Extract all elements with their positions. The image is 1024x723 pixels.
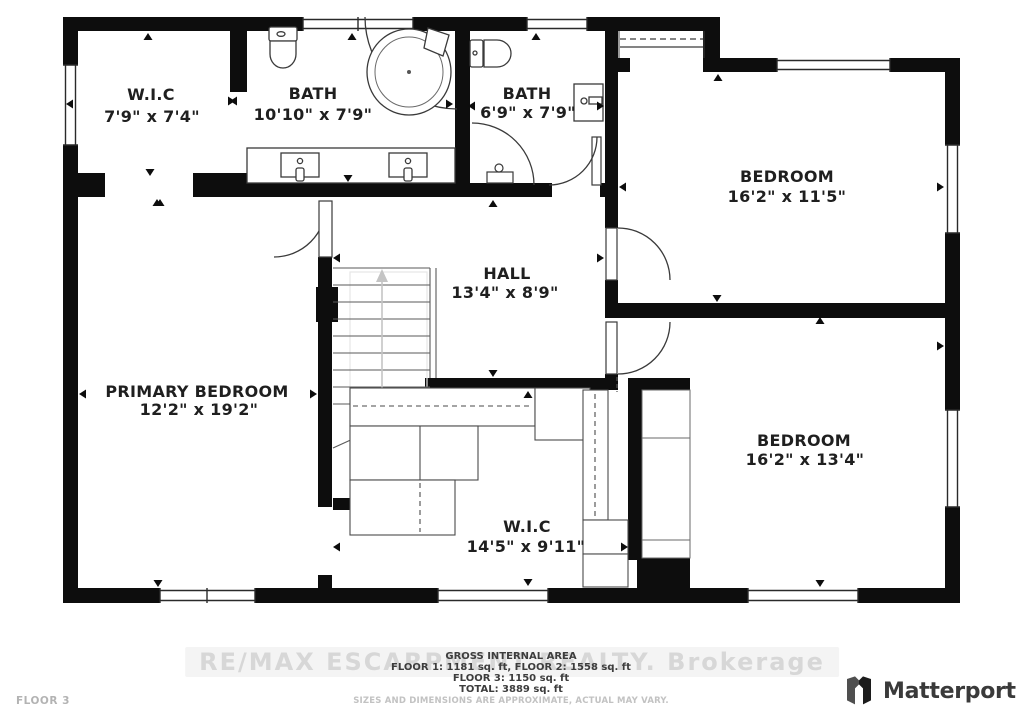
svg-text:12'2" x 19'2": 12'2" x 19'2" (140, 400, 259, 419)
room-label-bath-main: BATH 10'10" x 7'9" (254, 84, 373, 124)
gross-internal-area-block: GROSS INTERNAL AREA FLOOR 1: 1181 sq. ft… (311, 651, 711, 707)
svg-text:BATH: BATH (289, 84, 338, 103)
area-line-1: FLOOR 1: 1181 sq. ft, FLOOR 2: 1558 sq. … (311, 662, 711, 673)
room-label-bedroom-bottom: BEDROOM 16'2" x 13'4" (746, 431, 865, 469)
floor-number-label: FLOOR 3 (16, 695, 70, 707)
area-line-3: TOTAL: 3889 sq. ft (311, 684, 711, 695)
svg-text:13'4" x 8'9": 13'4" x 8'9" (451, 283, 558, 302)
area-title: GROSS INTERNAL AREA (311, 651, 711, 662)
faucet-icon (487, 164, 513, 183)
closet-top-bedroom (619, 31, 704, 58)
bedroom-closet-shelves (642, 390, 690, 558)
room-label-bedroom-top: BEDROOM 16'2" x 11'5" (728, 167, 847, 206)
floorplan-page: RE/MAX ESCARPMENT REALTY. Brokerage (0, 0, 1024, 723)
matterport-wordmark: Matterport (883, 679, 1016, 704)
svg-text:PRIMARY BEDROOM: PRIMARY BEDROOM (105, 382, 288, 401)
svg-text:BEDROOM: BEDROOM (740, 167, 834, 186)
svg-text:HALL: HALL (483, 264, 530, 283)
room-label-hall: HALL 13'4" x 8'9" (451, 264, 558, 302)
room-label-bath-small: BATH 6'9" x 7'9" (480, 84, 576, 122)
floorplan-drawing: W.I.C 7'9" x 7'4" BATH 10'10" x 7'9" BAT… (0, 0, 1024, 723)
room-label-wic-bottom: W.I.C 14'5" x 9'11" (467, 517, 586, 556)
bathtub-icon (365, 17, 457, 115)
svg-text:6'9" x 7'9": 6'9" x 7'9" (480, 103, 576, 122)
matterport-mark-icon (843, 675, 875, 707)
area-line-2: FLOOR 3: 1150 sq. ft (311, 673, 711, 684)
size-disclaimer: SIZES AND DIMENSIONS ARE APPROXIMATE, AC… (311, 696, 711, 707)
toilet-small-icon (470, 40, 511, 67)
room-labels: W.I.C 7'9" x 7'4" BATH 10'10" x 7'9" BAT… (104, 84, 864, 556)
svg-text:14'5" x 9'11": 14'5" x 9'11" (467, 537, 586, 556)
svg-text:10'10" x 7'9": 10'10" x 7'9" (254, 105, 373, 124)
wic-wardrobes (350, 388, 628, 587)
svg-text:W.I.C: W.I.C (503, 517, 551, 536)
bedroom-bottom-door (606, 322, 670, 374)
svg-text:7'9" x 7'4": 7'9" x 7'4" (104, 107, 200, 126)
room-label-primary-bedroom: PRIMARY BEDROOM 12'2" x 19'2" (105, 382, 288, 419)
svg-text:16'2" x 13'4": 16'2" x 13'4" (746, 450, 865, 469)
toilet-icon (269, 27, 297, 68)
svg-text:BATH: BATH (503, 84, 552, 103)
bedroom-top-door (606, 228, 670, 280)
svg-text:W.I.C: W.I.C (127, 85, 175, 104)
sink-icon (574, 84, 603, 121)
svg-text:16'2" x 11'5": 16'2" x 11'5" (728, 187, 847, 206)
svg-text:BEDROOM: BEDROOM (757, 431, 851, 450)
primary-bedroom-door (274, 201, 332, 257)
vanity-sinks-icon (247, 148, 455, 183)
matterport-logo: Matterport (843, 675, 1016, 707)
room-label-wic-top: W.I.C 7'9" x 7'4" (104, 85, 200, 126)
